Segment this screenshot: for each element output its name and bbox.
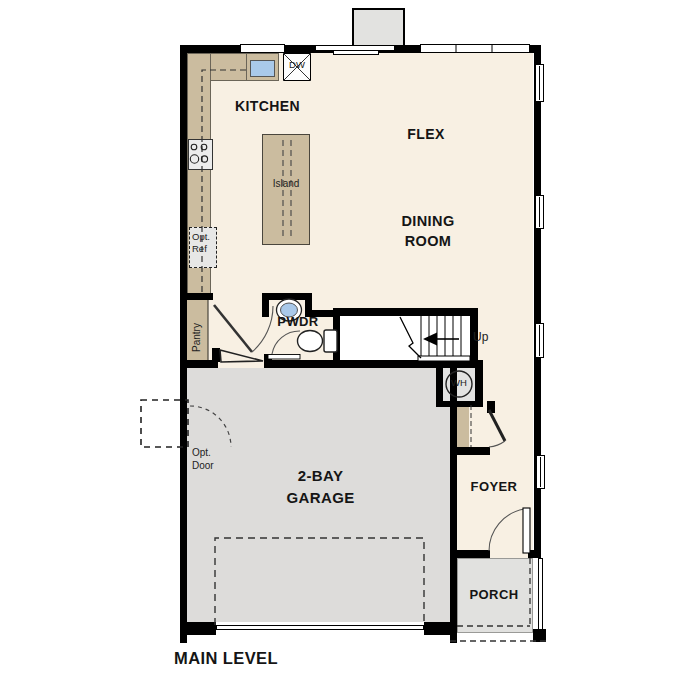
wall-wh-left bbox=[436, 360, 443, 407]
optional-ref-label: Opt. Ref bbox=[192, 231, 210, 255]
kitchen-sink-icon bbox=[250, 60, 275, 77]
wall-garage-right bbox=[450, 368, 457, 643]
chimney-bumpout bbox=[352, 8, 405, 48]
wall-pantry-top bbox=[180, 293, 213, 300]
wall-garage-top-main bbox=[264, 360, 483, 368]
porch-column bbox=[533, 629, 546, 642]
ledge-line-inner bbox=[333, 50, 379, 55]
porch-label: PORCH bbox=[460, 588, 528, 603]
flex-label: FLEX bbox=[400, 126, 452, 142]
wall-wh-right bbox=[475, 360, 483, 407]
garage-door bbox=[216, 625, 424, 630]
wall-left bbox=[180, 45, 187, 643]
wall-closet-stub bbox=[487, 401, 495, 413]
triple-window-top bbox=[420, 44, 530, 53]
floor-plan: KITCHEN FLEX DINING ROOM PWDR 2-BAY GARA… bbox=[0, 0, 687, 687]
range-icon bbox=[188, 139, 213, 170]
right-window-2 bbox=[535, 195, 544, 229]
island-counter bbox=[262, 134, 310, 245]
wall-garage-bottom-left bbox=[180, 622, 216, 635]
right-window-1 bbox=[535, 64, 544, 102]
foyer-window bbox=[536, 455, 545, 489]
stairwell bbox=[340, 316, 470, 360]
wall-powder-left-stub bbox=[262, 293, 269, 317]
porch-edge-strip bbox=[538, 558, 543, 630]
dining-room-label: DINING ROOM bbox=[383, 211, 473, 251]
island-label: Island bbox=[262, 178, 310, 190]
optional-door-label: Opt. Door bbox=[192, 446, 214, 472]
foyer-label: FOYER bbox=[460, 480, 528, 495]
kitchen-label: KITCHEN bbox=[220, 98, 315, 114]
wall-stairs-top bbox=[333, 308, 478, 316]
pantry-label: Pantry bbox=[191, 300, 203, 352]
dishwasher-label: DW bbox=[284, 60, 310, 71]
coat-closet-shelf bbox=[457, 404, 469, 447]
right-window-3 bbox=[535, 323, 544, 358]
wall-frontdoor-jamb bbox=[528, 550, 541, 558]
garage-door-stop bbox=[264, 354, 272, 361]
wall-stairs-left bbox=[333, 308, 340, 363]
garage-door-hinge-post bbox=[212, 348, 220, 362]
garage-label: 2-BAY GARAGE bbox=[258, 465, 383, 509]
water-heater-label: WH bbox=[446, 378, 472, 389]
plan-title: MAIN LEVEL bbox=[174, 649, 374, 668]
wall-garage-bottom-right bbox=[424, 622, 457, 635]
powder-label: PWDR bbox=[267, 315, 329, 330]
wall-wh-bottom bbox=[436, 401, 483, 407]
kitchen-sink-window bbox=[240, 44, 285, 53]
up-label: Up bbox=[473, 331, 499, 345]
